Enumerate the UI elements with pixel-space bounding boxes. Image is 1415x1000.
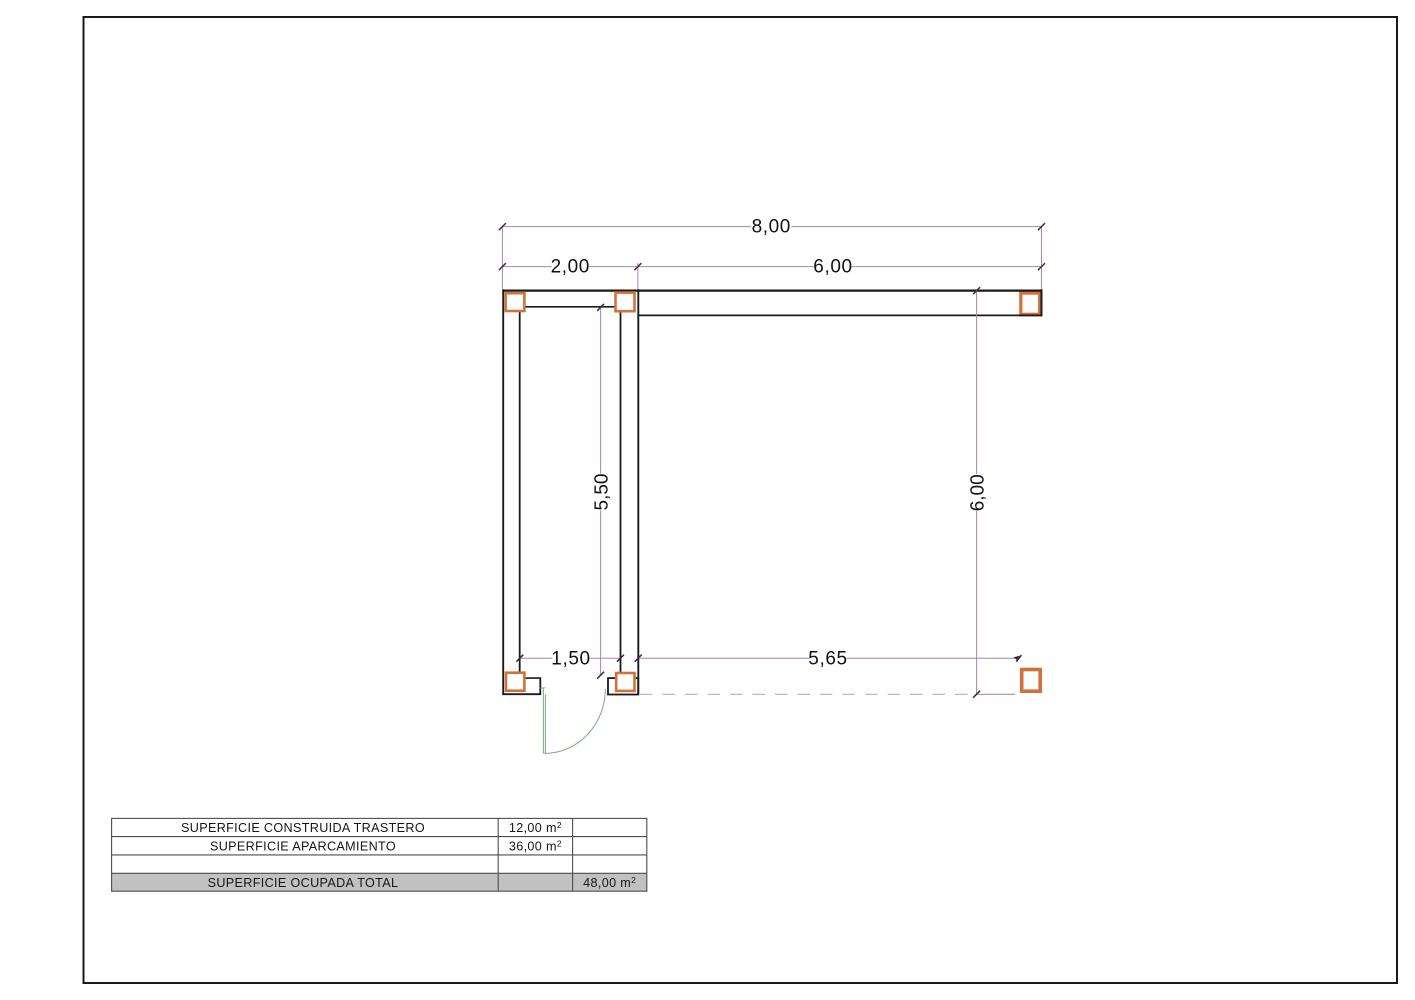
svg-text:SUPERFICIE APARCAMIENTO: SUPERFICIE APARCAMIENTO <box>210 839 396 853</box>
svg-text:12,00 m2: 12,00 m2 <box>509 820 562 835</box>
svg-text:2,00: 2,00 <box>551 256 590 277</box>
svg-text:8,00: 8,00 <box>752 216 791 237</box>
svg-text:SUPERFICIE CONSTRUIDA TRASTERO: SUPERFICIE CONSTRUIDA TRASTERO <box>181 821 425 835</box>
svg-text:6,00: 6,00 <box>813 256 852 277</box>
svg-text:48,00 m2: 48,00 m2 <box>583 875 636 890</box>
svg-text:36,00 m2: 36,00 m2 <box>509 838 562 853</box>
svg-text:5,65: 5,65 <box>808 648 847 669</box>
svg-text:SUPERFICIE OCUPADA TOTAL: SUPERFICIE OCUPADA TOTAL <box>208 876 399 890</box>
svg-text:1,50: 1,50 <box>551 648 590 669</box>
